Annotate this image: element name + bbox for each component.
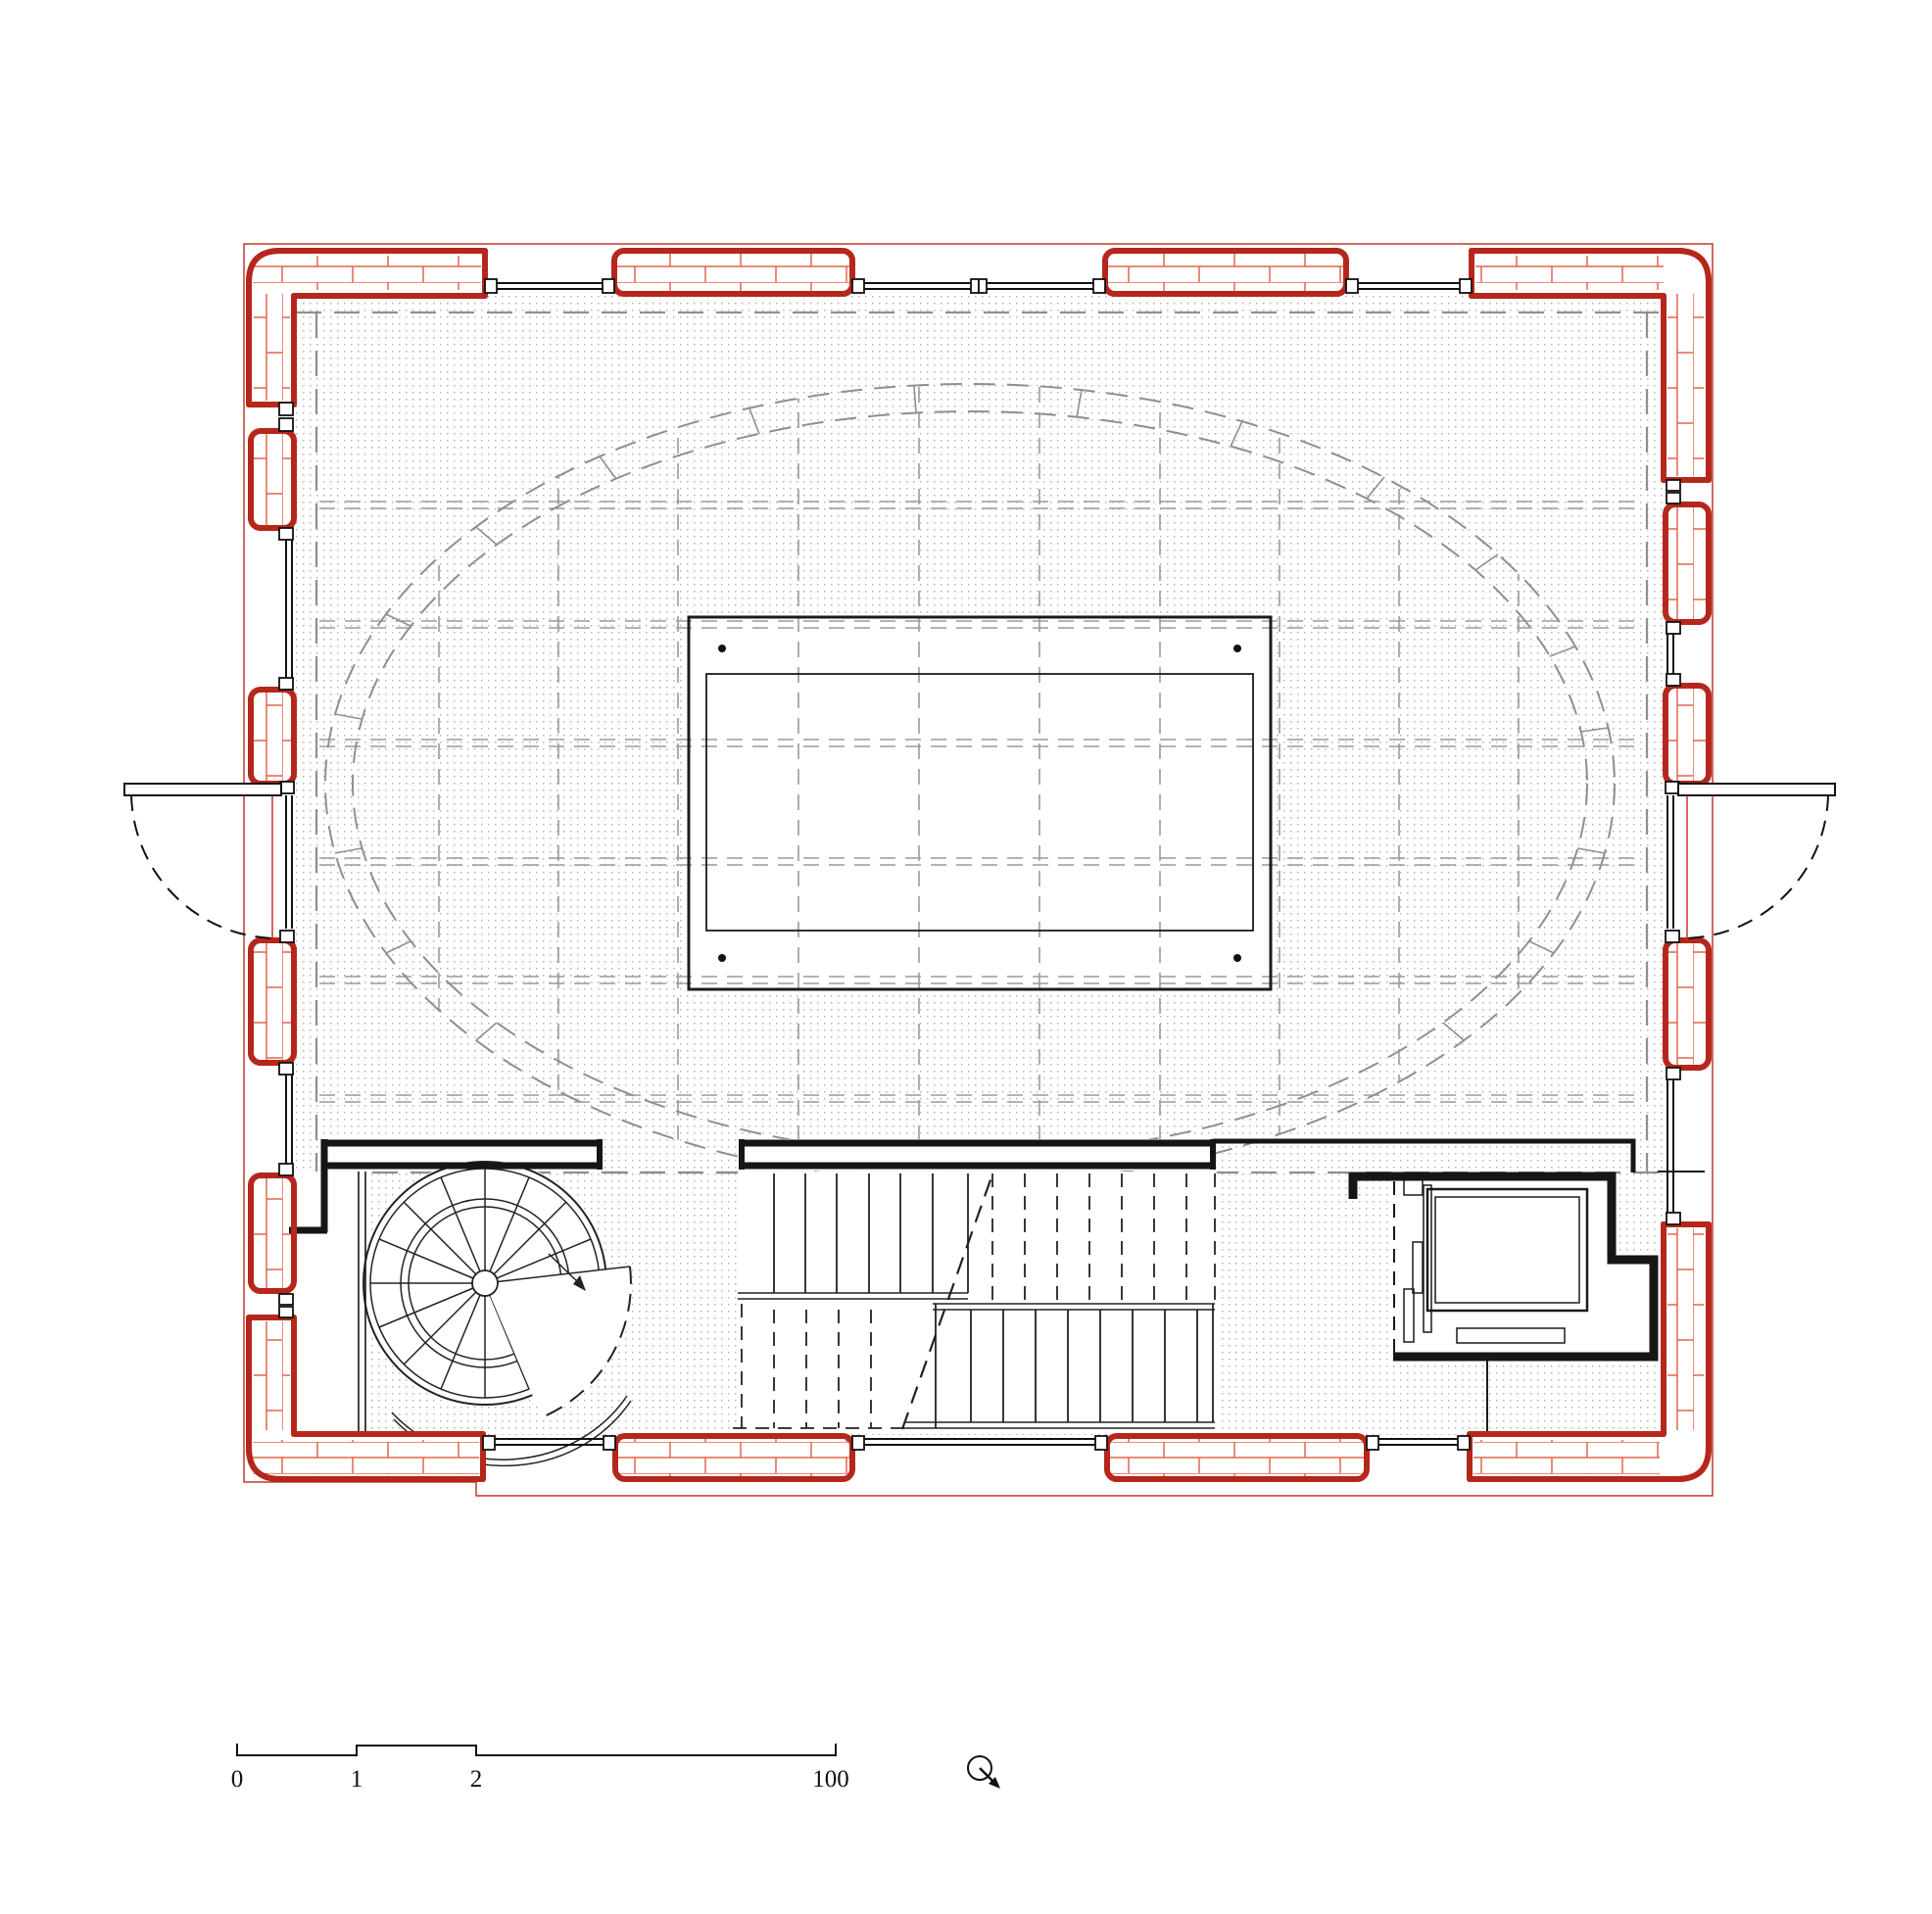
window-right-3 [1666,1068,1680,1224]
window-top-2 [852,279,1105,293]
window-bottom-1 [483,1436,615,1450]
floor-plan-sheet: 0 1 2 100 [0,0,1932,1914]
scale-label-2: 2 [470,1766,483,1793]
window-top-1 [485,279,614,293]
window-left-1 [279,403,293,431]
scale-label-0: 0 [231,1766,244,1793]
spiral-newel-post [472,1270,498,1296]
window-left-2 [279,528,293,690]
floor-plan-canvas: 0 1 2 100 [0,0,1932,1914]
window-right-1 [1666,480,1680,503]
scale-label-100: 100 [812,1766,849,1793]
door-right-leaf [1678,784,1835,795]
window-top-3 [1346,279,1472,293]
window-left-3 [279,1063,293,1175]
door-left [124,782,294,942]
north-arrow-icon [968,1756,1000,1789]
scale-label-1: 1 [351,1766,363,1793]
window-bottom-3 [1367,1436,1470,1450]
skylight-backing [687,615,1273,991]
door-left-leaf [124,784,281,795]
window-mullion [971,279,979,293]
door-right [1666,782,1835,942]
scale-bar: 0 1 2 100 [231,1744,849,1793]
window-bottom-2 [852,1436,1107,1450]
window-right-2 [1666,622,1680,686]
window-left-4 [279,1294,293,1317]
main-stair-floor [738,1172,1217,1432]
door-left-swing [131,795,280,938]
door-right-swing [1679,795,1828,938]
